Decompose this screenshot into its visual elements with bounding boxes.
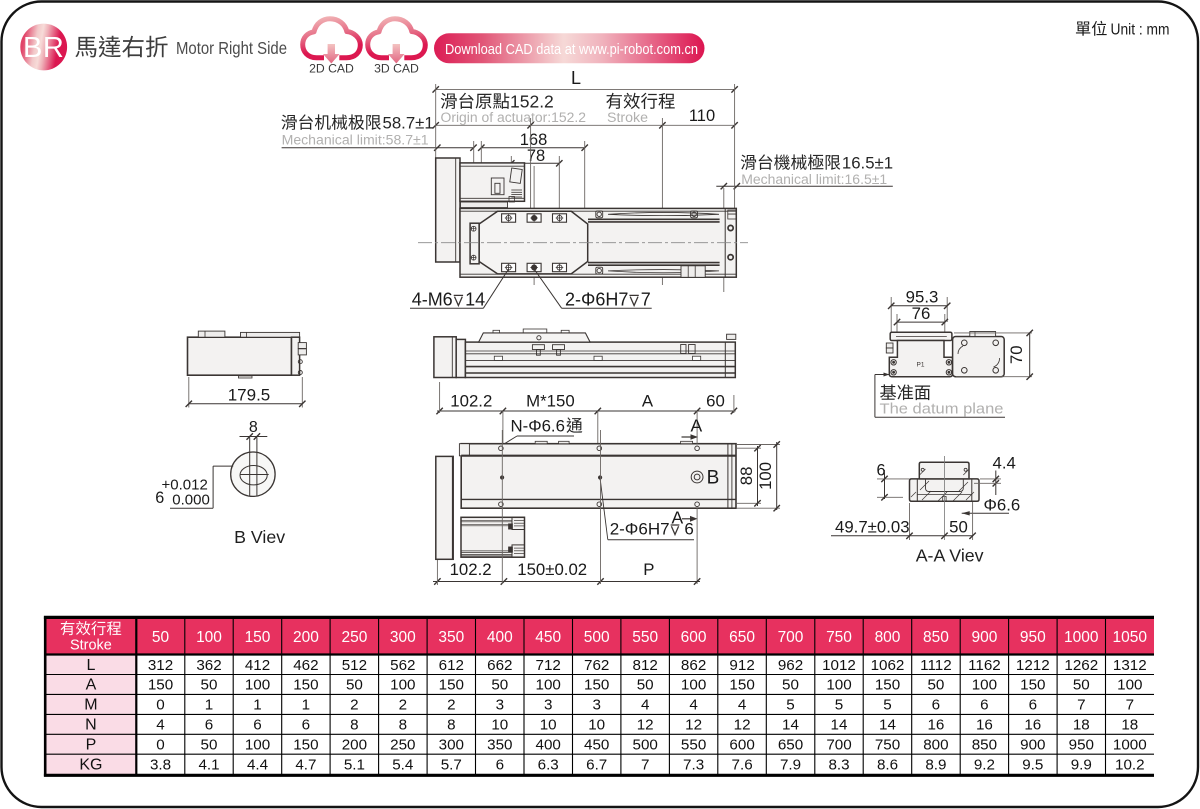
svg-text:50: 50 (637, 677, 654, 694)
svg-text:100: 100 (756, 462, 775, 490)
svg-text:7.6: 7.6 (732, 757, 753, 774)
svg-text:100: 100 (245, 677, 270, 694)
svg-text:8: 8 (350, 717, 358, 734)
svg-text:662: 662 (487, 657, 512, 674)
svg-text:6: 6 (932, 697, 940, 714)
svg-text:M: M (84, 697, 97, 714)
svg-text:4.1: 4.1 (198, 757, 219, 774)
svg-text:Unit : mm: Unit : mm (1111, 22, 1170, 39)
svg-text:800: 800 (923, 737, 948, 754)
svg-text:50: 50 (927, 677, 944, 694)
svg-text:550: 550 (632, 629, 658, 646)
svg-text:18: 18 (1121, 717, 1138, 734)
svg-text:2: 2 (399, 697, 407, 714)
svg-text:50: 50 (152, 629, 170, 646)
svg-text:50: 50 (949, 518, 968, 537)
svg-text:3D CAD: 3D CAD (374, 62, 419, 76)
svg-text:850: 850 (972, 737, 997, 754)
svg-text:60: 60 (706, 392, 725, 411)
svg-text:950: 950 (1069, 737, 1094, 754)
svg-text:3: 3 (496, 697, 504, 714)
svg-text:88: 88 (737, 467, 756, 486)
svg-text:6.3: 6.3 (538, 757, 559, 774)
svg-text:6: 6 (496, 757, 504, 774)
svg-text:50: 50 (346, 677, 363, 694)
svg-text:10.2: 10.2 (1115, 757, 1145, 774)
svg-text:800: 800 (875, 629, 901, 646)
svg-text:750: 750 (826, 629, 852, 646)
svg-text:100: 100 (826, 677, 851, 694)
svg-text:0.000: 0.000 (172, 491, 210, 508)
svg-text:6: 6 (684, 520, 693, 539)
svg-text:4: 4 (641, 697, 649, 714)
svg-text:100: 100 (536, 677, 561, 694)
svg-text:50: 50 (201, 677, 218, 694)
svg-text:150: 150 (293, 677, 318, 694)
svg-text:50: 50 (1073, 677, 1090, 694)
svg-text:100: 100 (245, 737, 270, 754)
svg-text:6.7: 6.7 (586, 757, 607, 774)
svg-text:10: 10 (540, 717, 557, 734)
svg-text:7: 7 (641, 757, 649, 774)
svg-text:750: 750 (875, 737, 900, 754)
svg-text:8.9: 8.9 (925, 757, 946, 774)
svg-text:1: 1 (302, 697, 310, 714)
svg-text:5: 5 (835, 697, 843, 714)
svg-text:58.7±1: 58.7±1 (383, 114, 434, 133)
svg-text:12: 12 (685, 717, 702, 734)
svg-text:150: 150 (1020, 677, 1045, 694)
svg-text:150±0.02: 150±0.02 (517, 560, 587, 579)
svg-text:152.2: 152.2 (510, 92, 554, 112)
svg-text:2D CAD: 2D CAD (309, 62, 354, 76)
svg-text:3: 3 (592, 697, 600, 714)
svg-text:150: 150 (729, 677, 754, 694)
svg-text:600: 600 (729, 737, 754, 754)
svg-text:1: 1 (253, 697, 261, 714)
svg-text:10: 10 (491, 717, 508, 734)
svg-text:10: 10 (588, 717, 605, 734)
svg-text:362: 362 (196, 657, 221, 674)
svg-text:1162: 1162 (968, 657, 1001, 674)
svg-text:16: 16 (927, 717, 944, 734)
svg-text:9.2: 9.2 (974, 757, 995, 774)
svg-text:962: 962 (778, 657, 803, 674)
svg-text:Motor Right Side: Motor Right Side (176, 38, 287, 58)
svg-text:250: 250 (341, 629, 367, 646)
svg-text:0: 0 (156, 697, 164, 714)
svg-text:110: 110 (689, 107, 715, 125)
svg-text:900: 900 (1020, 737, 1045, 754)
svg-text:6: 6 (253, 717, 261, 734)
svg-text:50: 50 (782, 677, 799, 694)
svg-text:9.9: 9.9 (1071, 757, 1092, 774)
svg-text:9.5: 9.5 (1022, 757, 1043, 774)
svg-text:P: P (86, 737, 97, 754)
svg-text:A: A (691, 416, 703, 436)
svg-text:4-M6: 4-M6 (412, 290, 453, 310)
svg-text:762: 762 (584, 657, 609, 674)
svg-text:7.9: 7.9 (780, 757, 801, 774)
svg-text:BR: BR (23, 32, 64, 64)
svg-text:8: 8 (399, 717, 407, 734)
svg-text:Stroke: Stroke (607, 110, 648, 126)
svg-text:3: 3 (544, 697, 552, 714)
svg-text:700: 700 (826, 737, 851, 754)
svg-text:5: 5 (883, 697, 891, 714)
svg-text:100: 100 (972, 677, 997, 694)
svg-text:4.4: 4.4 (247, 757, 268, 774)
svg-text:850: 850 (923, 629, 949, 646)
svg-text:100: 100 (1117, 677, 1142, 694)
svg-text:16: 16 (976, 717, 993, 734)
svg-text:Φ6.6: Φ6.6 (984, 496, 1021, 515)
svg-text:5.7: 5.7 (441, 757, 462, 774)
svg-text:2: 2 (350, 697, 358, 714)
svg-text:A: A (86, 677, 97, 694)
svg-text:150: 150 (439, 677, 464, 694)
svg-text:600: 600 (681, 629, 707, 646)
svg-text:Mechanical limit:58.7±1: Mechanical limit:58.7±1 (282, 132, 429, 148)
svg-text:Origin of actuator:152.2: Origin of actuator:152.2 (441, 110, 587, 126)
svg-text:12: 12 (734, 717, 751, 734)
svg-text:1062: 1062 (871, 657, 905, 674)
svg-text:8: 8 (447, 717, 455, 734)
svg-text:1262: 1262 (1064, 657, 1098, 674)
svg-text:2-Φ6H7: 2-Φ6H7 (610, 520, 670, 539)
svg-text:8.6: 8.6 (877, 757, 898, 774)
svg-text:102.2: 102.2 (450, 392, 492, 411)
svg-text:150: 150 (584, 677, 609, 694)
svg-text:16: 16 (1024, 717, 1041, 734)
svg-text:7: 7 (1077, 697, 1085, 714)
svg-text:200: 200 (293, 629, 319, 646)
svg-text:2-Φ6H7: 2-Φ6H7 (565, 290, 628, 310)
svg-text:100: 100 (390, 677, 415, 694)
svg-text:7.3: 7.3 (683, 757, 704, 774)
svg-text:4: 4 (156, 717, 164, 734)
svg-text:450: 450 (535, 629, 561, 646)
svg-text:L: L (571, 68, 581, 88)
svg-text:14: 14 (831, 717, 848, 734)
svg-text:1: 1 (205, 697, 213, 714)
svg-text:500: 500 (584, 629, 610, 646)
svg-text:78: 78 (527, 147, 545, 165)
svg-text:400: 400 (536, 737, 561, 754)
svg-text:7: 7 (1126, 697, 1134, 714)
svg-text:6: 6 (980, 697, 988, 714)
svg-text:350: 350 (487, 737, 512, 754)
svg-text:KG: KG (79, 757, 102, 774)
svg-text:4.7: 4.7 (295, 757, 316, 774)
svg-text:1212: 1212 (1016, 657, 1050, 674)
svg-text:900: 900 (971, 629, 997, 646)
svg-text:462: 462 (293, 657, 318, 674)
svg-text:P: P (643, 560, 654, 579)
svg-text:862: 862 (681, 657, 706, 674)
svg-text:450: 450 (584, 737, 609, 754)
svg-text:179.5: 179.5 (228, 385, 271, 404)
svg-text:562: 562 (390, 657, 415, 674)
svg-text:300: 300 (390, 629, 416, 646)
svg-text:5.1: 5.1 (344, 757, 365, 774)
svg-text:5: 5 (786, 697, 794, 714)
svg-text:N: N (85, 717, 97, 734)
svg-text:6: 6 (1029, 697, 1037, 714)
svg-text:8.3: 8.3 (828, 757, 849, 774)
svg-text:4: 4 (738, 697, 746, 714)
svg-text:14: 14 (782, 717, 799, 734)
svg-text:4: 4 (689, 697, 697, 714)
svg-text:400: 400 (487, 629, 513, 646)
svg-text:N-Φ6.6: N-Φ6.6 (511, 417, 565, 436)
svg-text:18: 18 (1073, 717, 1090, 734)
svg-text:6: 6 (302, 717, 310, 734)
svg-text:76: 76 (912, 304, 931, 323)
svg-text:700: 700 (778, 629, 804, 646)
svg-text:A-A Viev: A-A Viev (916, 546, 984, 566)
svg-text:612: 612 (439, 657, 464, 674)
svg-text:8: 8 (249, 419, 258, 436)
svg-text:1000: 1000 (1113, 737, 1147, 754)
svg-text:2: 2 (447, 697, 455, 714)
svg-text:A: A (642, 392, 654, 411)
svg-text:1112: 1112 (920, 657, 952, 674)
svg-text:812: 812 (633, 657, 658, 674)
svg-text:B: B (707, 467, 720, 488)
svg-text:350: 350 (438, 629, 464, 646)
svg-text:512: 512 (342, 657, 367, 674)
svg-text:4.4: 4.4 (993, 454, 1016, 473)
svg-text:650: 650 (729, 629, 755, 646)
svg-text:712: 712 (536, 657, 561, 674)
svg-text:300: 300 (439, 737, 464, 754)
svg-text:250: 250 (390, 737, 415, 754)
svg-text:The datum plane: The datum plane (880, 401, 1004, 418)
svg-text:14: 14 (879, 717, 896, 734)
svg-text:70: 70 (1007, 345, 1026, 364)
svg-text:950: 950 (1020, 629, 1046, 646)
svg-text:3.8: 3.8 (150, 757, 171, 774)
svg-text:6: 6 (205, 717, 213, 734)
svg-text:150: 150 (875, 677, 900, 694)
svg-text:Download CAD data at www.pi-ro: Download CAD data at www.pi-robot.com.cn (445, 42, 698, 58)
svg-text:12: 12 (637, 717, 654, 734)
svg-text:912: 912 (729, 657, 754, 674)
svg-text:14: 14 (465, 290, 485, 310)
svg-text:412: 412 (245, 657, 270, 674)
svg-text:5.4: 5.4 (392, 757, 413, 774)
svg-text:500: 500 (633, 737, 658, 754)
svg-text:0: 0 (156, 737, 164, 754)
svg-text:16.5±1: 16.5±1 (842, 154, 893, 173)
svg-text:650: 650 (778, 737, 803, 754)
svg-text:150: 150 (293, 737, 318, 754)
svg-text:7: 7 (641, 290, 651, 310)
svg-text:150: 150 (245, 629, 271, 646)
svg-text:100: 100 (681, 677, 706, 694)
svg-text:P1: P1 (917, 362, 925, 369)
svg-text:49.7±0.03: 49.7±0.03 (835, 518, 910, 537)
svg-text:1312: 1312 (1113, 657, 1147, 674)
svg-text:Stroke: Stroke (70, 638, 112, 654)
svg-text:550: 550 (681, 737, 706, 754)
svg-text:50: 50 (201, 737, 218, 754)
svg-text:200: 200 (342, 737, 367, 754)
svg-text:150: 150 (148, 677, 173, 694)
svg-text:M*150: M*150 (526, 392, 575, 411)
svg-text:50: 50 (491, 677, 508, 694)
svg-text:1050: 1050 (1113, 629, 1148, 646)
svg-text:102.2: 102.2 (450, 560, 492, 579)
svg-text:1012: 1012 (822, 657, 856, 674)
svg-text:B Viev: B Viev (234, 527, 285, 547)
svg-text:L: L (86, 657, 95, 674)
svg-text:312: 312 (148, 657, 173, 674)
svg-text:1000: 1000 (1064, 629, 1099, 646)
svg-text:100: 100 (196, 629, 222, 646)
